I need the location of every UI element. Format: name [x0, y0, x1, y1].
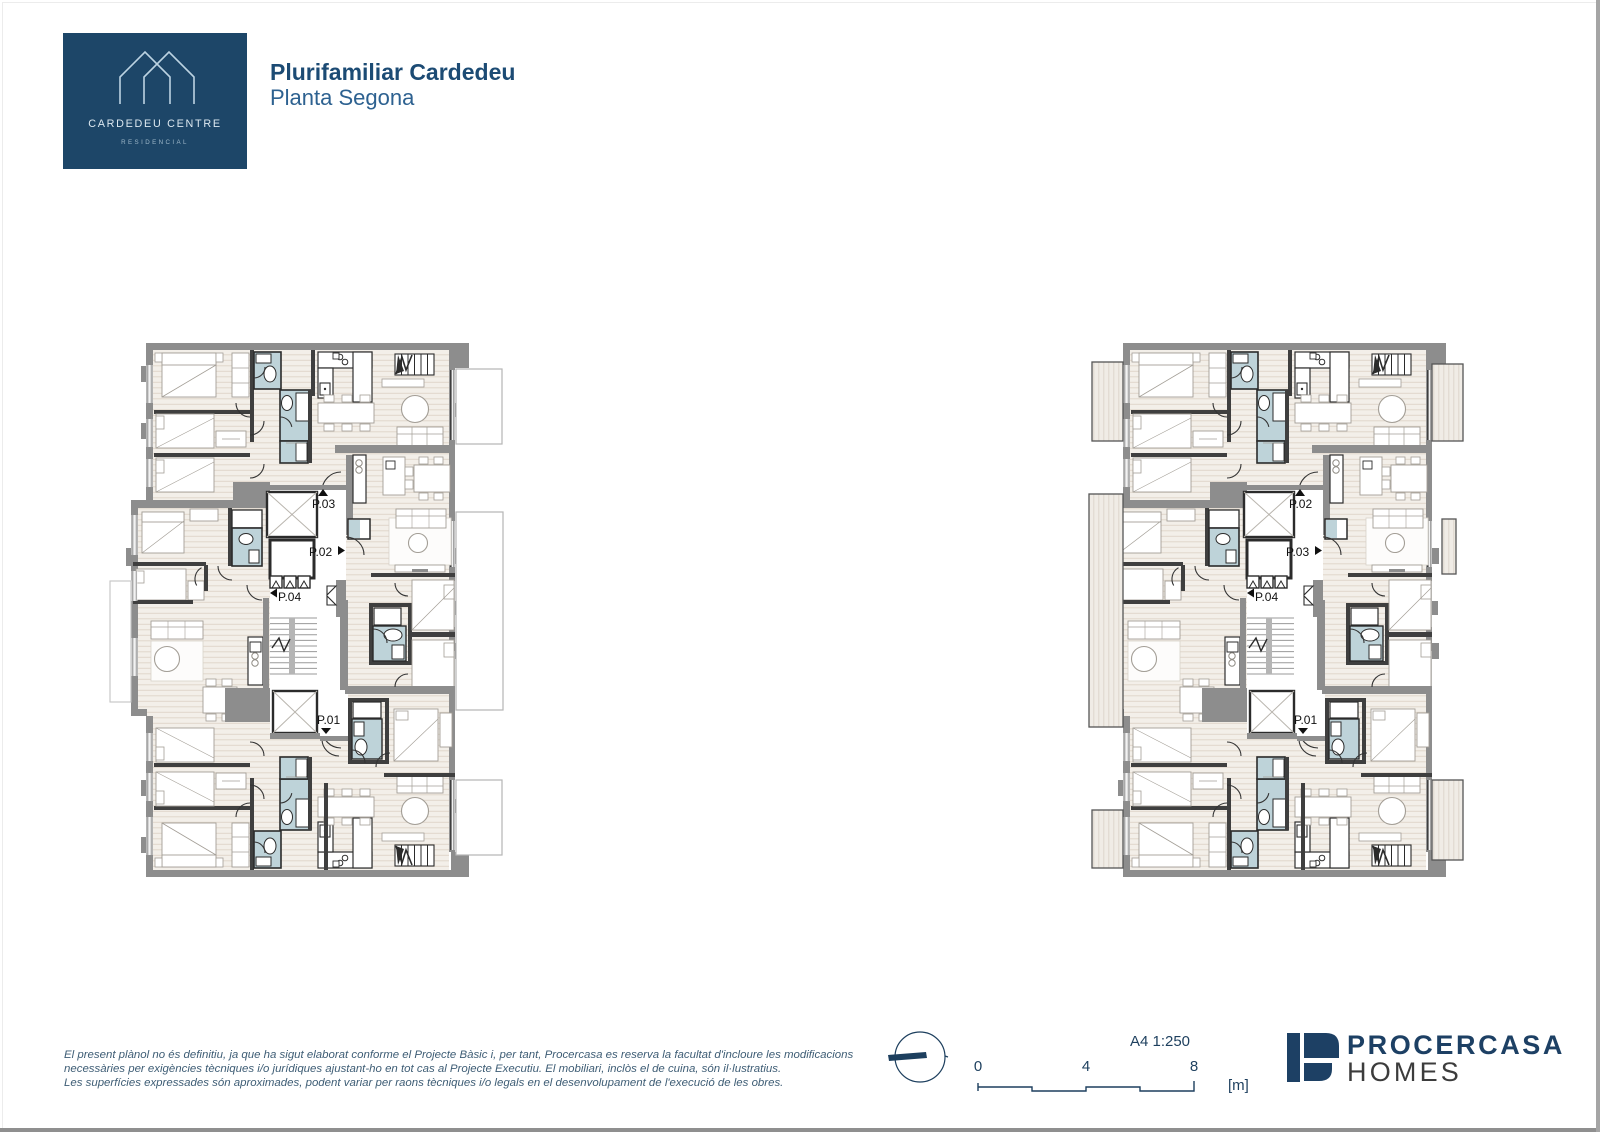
- svg-text:0: 0: [974, 1058, 982, 1075]
- svg-text:Planta Segona: Planta Segona: [270, 85, 415, 110]
- svg-text:P.03: P.03: [312, 497, 335, 511]
- svg-text:El present plànol no és defini: El present plànol no és definitiu, ja qu…: [64, 1049, 854, 1061]
- svg-text:A4 1:250: A4 1:250: [1130, 1033, 1190, 1050]
- svg-text:necessàries per exigències tèc: necessàries per exigències tècniques i/o…: [64, 1063, 781, 1075]
- svg-text:HOMES: HOMES: [1347, 1057, 1462, 1087]
- svg-text:Plurifamiliar Cardedeu: Plurifamiliar Cardedeu: [270, 59, 515, 85]
- svg-text:P.01: P.01: [1294, 713, 1317, 727]
- svg-text:P.04: P.04: [1255, 590, 1278, 604]
- svg-text:RESIDENCIAL: RESIDENCIAL: [121, 139, 189, 146]
- svg-text:P.03: P.03: [1286, 545, 1309, 559]
- svg-text:4: 4: [1082, 1058, 1090, 1075]
- svg-text:P.01: P.01: [317, 713, 340, 727]
- svg-text:[m]: [m]: [1228, 1077, 1249, 1094]
- svg-text:8: 8: [1190, 1058, 1198, 1075]
- svg-text:P.02: P.02: [309, 545, 332, 559]
- svg-text:P.02: P.02: [1289, 497, 1312, 511]
- svg-text:P.04: P.04: [278, 590, 301, 604]
- svg-text:Les superfícies expressades só: Les superfícies expressades són aproxima…: [64, 1077, 783, 1089]
- svg-text:PROCERCASA: PROCERCASA: [1347, 1030, 1565, 1060]
- svg-text:CARDEDEU CENTRE: CARDEDEU CENTRE: [88, 118, 221, 130]
